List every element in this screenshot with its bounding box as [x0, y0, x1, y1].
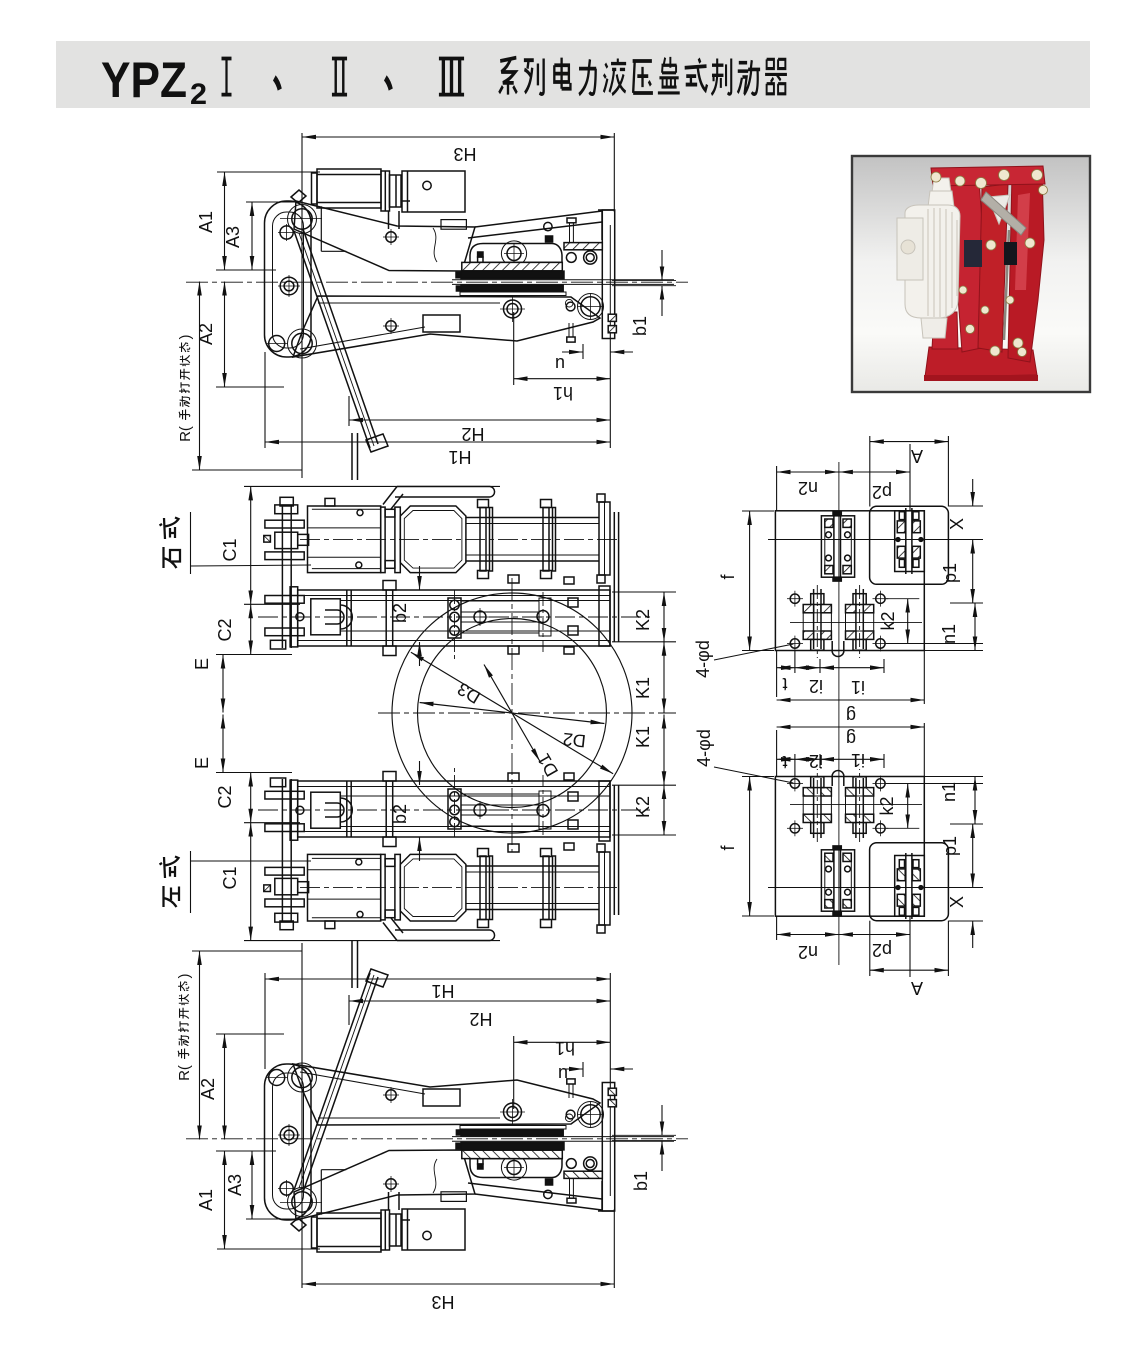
- svg-text:4-φd: 4-φd: [694, 729, 714, 767]
- svg-text:H2: H2: [461, 424, 484, 444]
- svg-text:K2: K2: [633, 609, 653, 631]
- svg-text:k2: k2: [878, 611, 898, 630]
- svg-text:A3: A3: [225, 1174, 245, 1196]
- svg-text:): ): [176, 974, 193, 979]
- svg-text:X: X: [947, 518, 967, 530]
- svg-text:R(: R(: [177, 426, 194, 442]
- svg-text:K2: K2: [633, 796, 653, 818]
- svg-text:C1: C1: [220, 538, 240, 561]
- svg-text:g: g: [846, 706, 856, 726]
- svg-text:C1: C1: [220, 866, 240, 889]
- svg-text:n1: n1: [939, 782, 959, 802]
- svg-text:p2: p2: [872, 940, 892, 960]
- svg-text:C2: C2: [215, 618, 235, 641]
- svg-text:D3: D3: [454, 679, 484, 708]
- svg-text:A: A: [911, 978, 923, 998]
- svg-text:H3: H3: [431, 1292, 454, 1312]
- svg-text:i2: i2: [809, 751, 823, 771]
- svg-text:t: t: [782, 674, 787, 694]
- svg-text:E: E: [192, 757, 212, 769]
- svg-text:f: f: [718, 574, 738, 580]
- svg-text:k2: k2: [877, 796, 897, 815]
- svg-text:2: 2: [190, 78, 207, 111]
- svg-text:h1: h1: [555, 1038, 575, 1058]
- svg-text:p1: p1: [940, 836, 960, 856]
- svg-text:A1: A1: [196, 1189, 216, 1211]
- svg-text:K1: K1: [633, 726, 653, 748]
- svg-text:A1: A1: [196, 211, 216, 233]
- svg-text:n2: n2: [798, 942, 818, 962]
- svg-text:H1: H1: [431, 981, 454, 1001]
- svg-text:b2: b2: [390, 603, 410, 623]
- svg-text:4-φd: 4-φd: [693, 640, 713, 678]
- svg-text:p2: p2: [872, 482, 892, 502]
- svg-text:D2: D2: [562, 729, 587, 751]
- svg-text:X: X: [947, 896, 967, 908]
- svg-text:u: u: [558, 1064, 568, 1084]
- svg-text:i1: i1: [851, 677, 865, 697]
- svg-text:h1: h1: [553, 383, 573, 403]
- svg-text:g: g: [846, 729, 856, 749]
- svg-text:YPZ: YPZ: [101, 52, 187, 108]
- svg-text:D1: D1: [533, 750, 562, 780]
- svg-text:C2: C2: [215, 785, 235, 808]
- svg-text:A: A: [911, 446, 923, 466]
- svg-text:A2: A2: [196, 323, 216, 345]
- svg-text:t: t: [782, 752, 787, 772]
- svg-text:E: E: [192, 658, 212, 670]
- svg-text:H2: H2: [469, 1009, 492, 1029]
- svg-text:b1: b1: [631, 1171, 651, 1191]
- svg-text:u: u: [555, 354, 565, 374]
- svg-text:p1: p1: [940, 563, 960, 583]
- svg-text:H3: H3: [453, 144, 476, 164]
- svg-text:b2: b2: [390, 804, 410, 824]
- svg-text:f: f: [718, 845, 738, 851]
- svg-text:): ): [177, 335, 194, 340]
- svg-text:R(: R(: [176, 1065, 193, 1081]
- svg-text:i1: i1: [851, 750, 865, 770]
- svg-text:A2: A2: [198, 1078, 218, 1100]
- svg-text:n2: n2: [798, 478, 818, 498]
- svg-text:b1: b1: [630, 316, 650, 336]
- svg-text:H1: H1: [448, 447, 471, 467]
- svg-text:A3: A3: [223, 226, 243, 248]
- svg-text:K1: K1: [633, 677, 653, 699]
- svg-text:n1: n1: [939, 624, 959, 644]
- svg-text:i2: i2: [809, 676, 823, 696]
